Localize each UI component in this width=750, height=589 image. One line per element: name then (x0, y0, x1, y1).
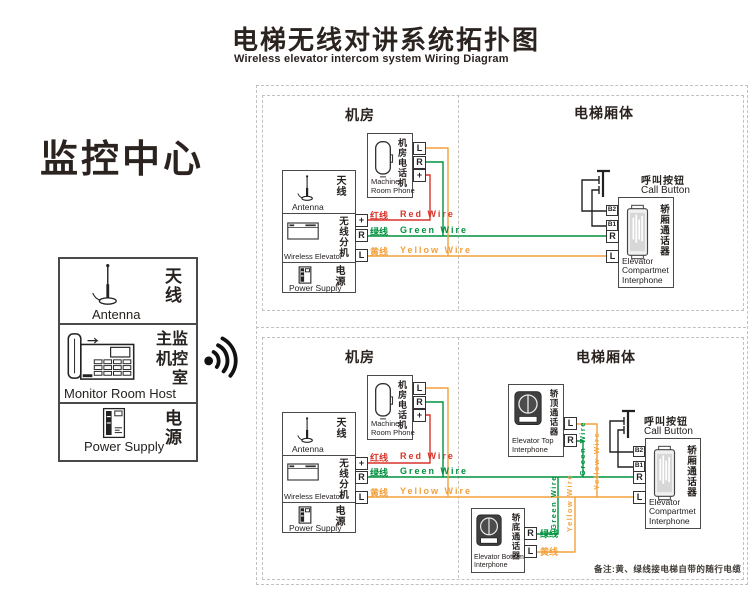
bottom-power-cell: 电源 Power Supply (283, 503, 355, 534)
antenna-label-zh: 天线 (332, 417, 347, 439)
monitor-center-box: 天线 Antenna 主监 机控 室 Mo (58, 257, 198, 462)
yellow-wire-label-en: Yellow Wire (400, 486, 472, 499)
yellow-wire-vertical-label: Yellow Wire (565, 474, 574, 532)
desk-phone-icon (66, 331, 136, 381)
yellow-wire-label-zh: 黄线 (370, 245, 388, 258)
power-supply-icon (298, 266, 312, 284)
speaker-icon (514, 390, 542, 428)
wireless-signal-icon (202, 336, 244, 382)
green-wire-label-zh: 绿线 (370, 466, 388, 479)
top-call-button-label-en: Call Button (641, 185, 690, 196)
bottom-wireless-elevator-box: 天线 Antenna 无线分机 Wireless Elevator 电源 Pow… (282, 412, 356, 533)
antenna-label-en: Antenna (292, 202, 324, 212)
monitor-antenna-label-zh: 天线 (159, 267, 184, 305)
monitor-power-cell: 电源 Power Supply (60, 404, 196, 456)
red-wire-label-en: Red Wire (400, 451, 455, 464)
red-wire-label-en: Red Wire (400, 209, 455, 222)
antenna-label-zh: 天线 (332, 175, 347, 197)
compartment-interphone-label-en3: Interphone (622, 276, 669, 286)
terminal-plus: + (355, 214, 368, 227)
footnote: 备注:黄、绿线接电梯自带的随行电缆 (594, 563, 741, 575)
top-antenna-cell: 天线 Antenna (283, 171, 355, 214)
terminal-l: L (355, 491, 368, 504)
power-supply-icon (102, 407, 126, 439)
compartment-interphone-icon (652, 445, 677, 501)
top-machine-room-phone-box: 机房电话机 Machine Room Phone (367, 133, 413, 198)
bottom-section-divider (458, 337, 459, 578)
monitor-antenna-label-en: Antenna (92, 307, 140, 322)
elevator-bottom-interphone-box: 轿底通话器 Elevator Bottom Interphone (471, 508, 525, 573)
monitor-antenna-cell: 天线 Antenna (60, 259, 196, 325)
bottom-compartment-interphone-box: 轿厢通话器 Elevator Compartmet Interphone (645, 438, 701, 529)
antenna-icon (88, 263, 124, 309)
wireless-elevator-label-en: Wireless Elevator (284, 252, 342, 261)
compartment-interphone-icon (625, 204, 650, 260)
power-supply-label-en: Power Supply (289, 283, 341, 293)
yellow-wire-short-label: 黄线 (540, 545, 558, 558)
yellow-wire-vertical-label: Yellow Wire (592, 432, 601, 490)
green-wire-label: 绿线 Green Wire (370, 466, 468, 479)
page-subtitle: Wireless elevator intercom system Wiring… (234, 53, 509, 65)
terminal-l: L (413, 142, 426, 155)
green-wire-label-en: Green Wire (400, 225, 468, 238)
antenna-label-en: Antenna (292, 444, 324, 454)
compartment-interphone-label-en3: Interphone (649, 517, 696, 527)
phone-handset-icon (372, 139, 394, 181)
monitor-host-zh-line1: 主监 (156, 330, 188, 350)
terminal-l: L (355, 249, 368, 262)
top-wireless-cell: 无线分机 Wireless Elevator (283, 214, 355, 263)
green-wire-label: 绿线 Green Wire (370, 225, 468, 238)
antenna-icon (295, 174, 317, 204)
speaker-icon (476, 513, 502, 549)
top-interphone-label-en2: Interphone (512, 446, 554, 455)
phone-handset-icon (372, 381, 394, 423)
monitor-power-label-en: Power Supply (84, 439, 164, 454)
wiring-diagram-page: 电梯无线对讲系统拓扑图 Wireless elevator intercom s… (0, 0, 750, 589)
bottom-wireless-cell: 无线分机 Wireless Elevator (283, 456, 355, 503)
monitor-host-label-en: Monitor Room Host (64, 386, 176, 401)
top-machine-room-label: 机房 (345, 105, 375, 125)
monitor-host-label-zh: 主监 机控 室 (156, 330, 188, 389)
page-title: 电梯无线对讲系统拓扑图 (232, 20, 540, 57)
top-power-cell: 电源 Power Supply (283, 263, 355, 294)
wireless-extension-icon (287, 463, 319, 481)
terminal-r: R (564, 434, 577, 447)
bottom-interphone-label-en2: Interphone (474, 562, 524, 570)
monitor-center-heading: 监控中心 (40, 128, 204, 183)
elevator-top-interphone-box: 轿顶通话器 Elevator Top Interphone (508, 384, 564, 457)
monitor-host-cell: 主监 机控 室 Monitor Room Host (60, 325, 196, 404)
middle-separator (256, 327, 746, 328)
red-wire-label-zh: 红线 (370, 209, 388, 222)
compartment-interphone-label-zh: 轿厢通话器 (656, 204, 670, 257)
terminal-l: L (413, 382, 426, 395)
green-wire-label-en: Green Wire (400, 466, 468, 479)
antenna-icon (295, 416, 317, 446)
compartment-interphone-label-zh: 轿厢通话器 (683, 445, 697, 498)
top-section-divider (458, 95, 459, 309)
bottom-antenna-cell: 天线 Antenna (283, 413, 355, 456)
terminal-l: L (606, 250, 619, 263)
yellow-wire-label-en: Yellow Wire (400, 245, 472, 258)
bottom-elevator-body-label: 电梯厢体 (576, 347, 636, 367)
green-wire-vertical-label: Green Wire (549, 475, 558, 530)
terminal-l: L (564, 417, 577, 430)
top-wireless-elevator-box: 天线 Antenna 无线分机 Wireless Elevator 电源 Pow… (282, 170, 356, 293)
terminal-plus: + (355, 457, 368, 470)
terminal-l: L (633, 491, 646, 504)
red-wire-label: 红线 Red Wire (370, 451, 455, 464)
power-supply-label-en: Power Supply (289, 523, 341, 533)
bottom-call-button-label-en: Call Button (644, 426, 693, 437)
power-supply-icon (298, 506, 312, 524)
wireless-extension-icon (287, 222, 319, 240)
machine-room-phone-label-en2: Room Phone (371, 429, 415, 438)
terminal-r: R (413, 156, 426, 169)
terminal-b2: B2 (606, 205, 618, 216)
terminal-r: R (606, 230, 619, 243)
terminal-l: L (524, 545, 537, 558)
bottom-interphone-label-en1: Elevator Bottom (474, 554, 524, 562)
top-interphone-label-zh: 轿顶通话器 (548, 389, 560, 437)
terminal-r: R (633, 471, 646, 484)
wireless-elevator-label-en: Wireless Elevator (284, 492, 342, 501)
machine-room-phone-label-en2: Room Phone (371, 187, 415, 196)
green-wire-short-label: 绿线 (540, 527, 558, 540)
terminal-r: R (355, 229, 368, 242)
red-wire-label: 红线 Red Wire (370, 209, 455, 222)
top-compartment-interphone-box: 轿厢通话器 Elevator Compartmet Interphone (618, 197, 674, 288)
top-elevator-body-label: 电梯厢体 (574, 103, 634, 123)
green-wire-vertical-label: Green Wire (578, 421, 587, 476)
terminal-r: R (524, 527, 537, 540)
yellow-wire-label: 黄线 Yellow Wire (370, 486, 472, 499)
red-wire-label-zh: 红线 (370, 451, 388, 464)
monitor-host-zh-line2: 机控 (156, 350, 188, 370)
terminal-b2: B2 (633, 446, 645, 457)
bottom-machine-room-label: 机房 (345, 347, 375, 367)
terminal-r: R (355, 471, 368, 484)
yellow-wire-label-zh: 黄线 (370, 486, 388, 499)
terminal-plus: + (413, 409, 426, 422)
yellow-wire-label: 黄线 Yellow Wire (370, 245, 472, 258)
terminal-plus: + (413, 169, 426, 182)
bottom-machine-room-phone-box: 机房电话机 Machine Room Phone (367, 375, 413, 440)
green-wire-label-zh: 绿线 (370, 225, 388, 238)
terminal-r: R (413, 396, 426, 409)
